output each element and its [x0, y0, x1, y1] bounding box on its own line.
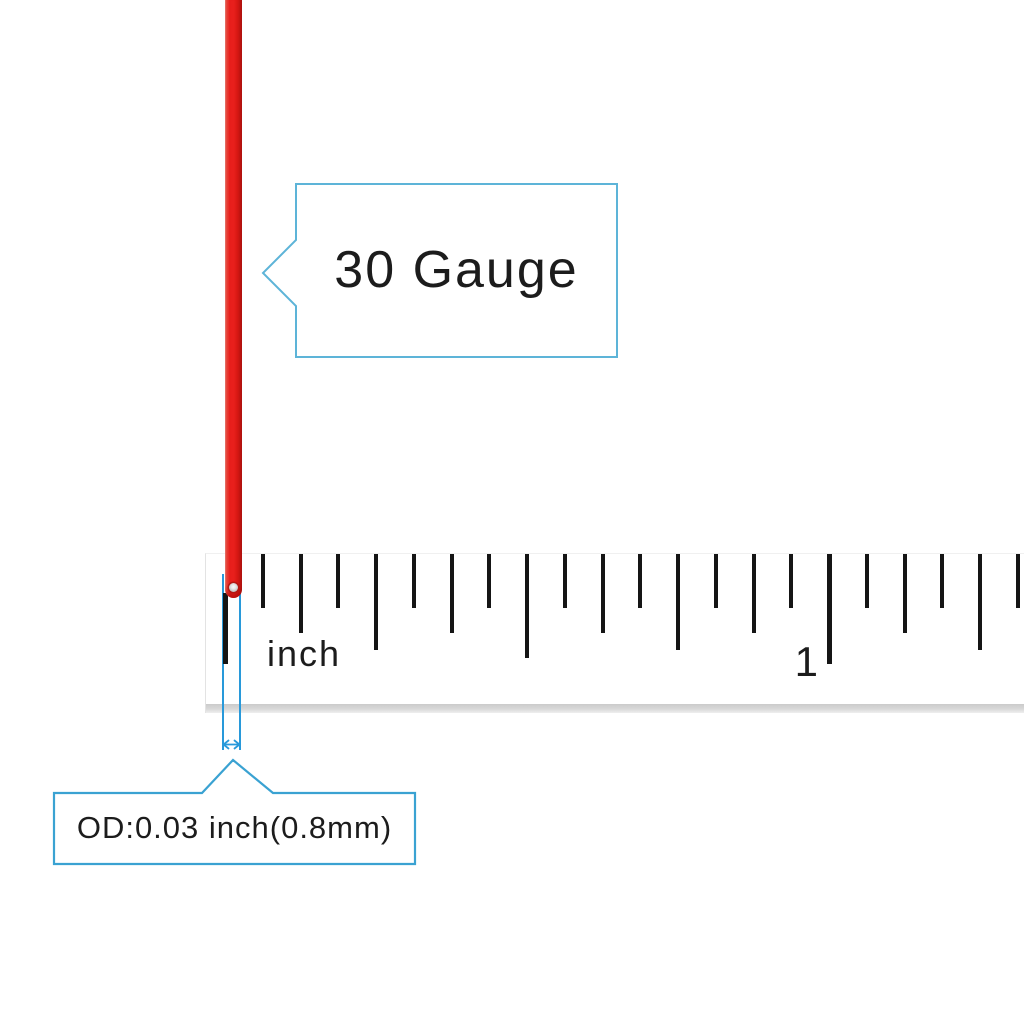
- ruler-tick: [525, 554, 529, 658]
- ruler-tick: [903, 554, 907, 633]
- ruler-bottom-edge: [206, 704, 1024, 713]
- ruler-tick: [450, 554, 454, 633]
- wire-core-dot: [229, 583, 238, 592]
- wire-gauge-diagram: inch 1 30 Gauge OD:0.03 inch(0.8mm): [0, 0, 1024, 1024]
- ruler-tick: [865, 554, 869, 608]
- ruler-tick: [714, 554, 718, 608]
- ruler-tick: [978, 554, 982, 650]
- ruler-tick: [336, 554, 340, 608]
- ruler-mark-1-label: 1: [786, 641, 818, 683]
- gauge-callout-label: 30 Gauge: [297, 185, 616, 355]
- red-wire: [225, 0, 242, 598]
- ruler-tick: [374, 554, 378, 650]
- ruler-tick: [487, 554, 491, 608]
- ruler-tick: [638, 554, 642, 608]
- od-callout-label: OD:0.03 inch(0.8mm): [56, 794, 413, 860]
- ruler-tick: [601, 554, 605, 633]
- ruler-tick: [789, 554, 793, 608]
- ruler-tick: [299, 554, 303, 633]
- ruler-tick: [827, 554, 832, 664]
- ruler-tick: [223, 593, 228, 664]
- ruler-tick: [1016, 554, 1020, 608]
- diameter-double-arrow-icon: [221, 736, 242, 753]
- ruler-tick: [261, 554, 265, 608]
- ruler-tick: [940, 554, 944, 608]
- od-guide-line-right: [239, 574, 241, 750]
- ruler-tick: [412, 554, 416, 608]
- ruler-tick: [563, 554, 567, 608]
- ruler-tick: [752, 554, 756, 633]
- ruler-tick: [676, 554, 680, 650]
- ruler-unit-label: inch: [267, 636, 341, 672]
